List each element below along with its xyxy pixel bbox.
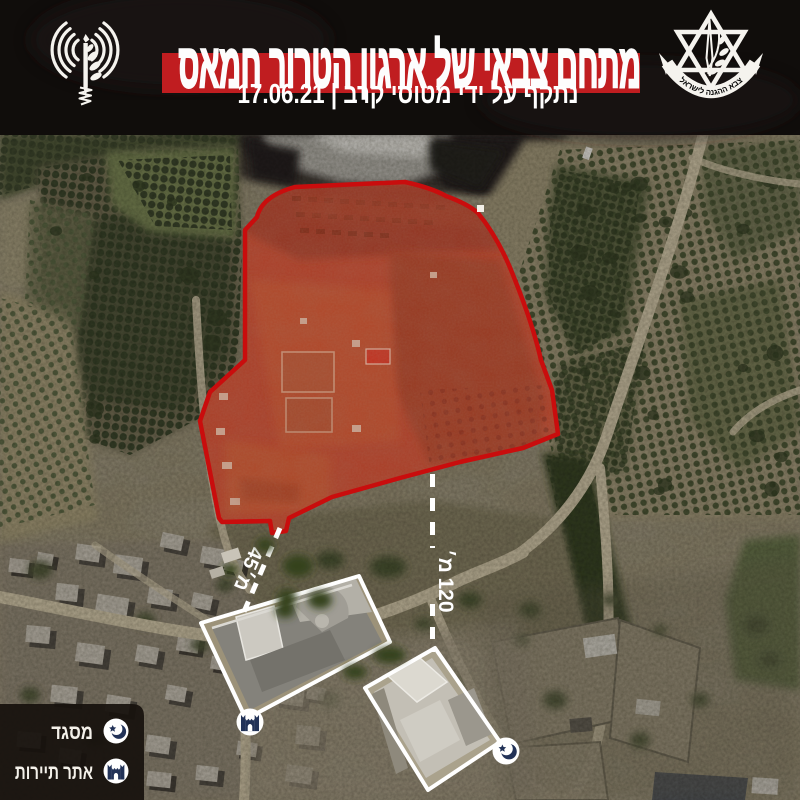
svg-text:מסגד: מסגד	[51, 721, 93, 744]
svg-text:מ׳: מ׳	[434, 549, 457, 573]
svg-text:אתר תיירות: אתר תיירות	[15, 759, 94, 783]
svg-text:120: 120	[434, 577, 457, 612]
